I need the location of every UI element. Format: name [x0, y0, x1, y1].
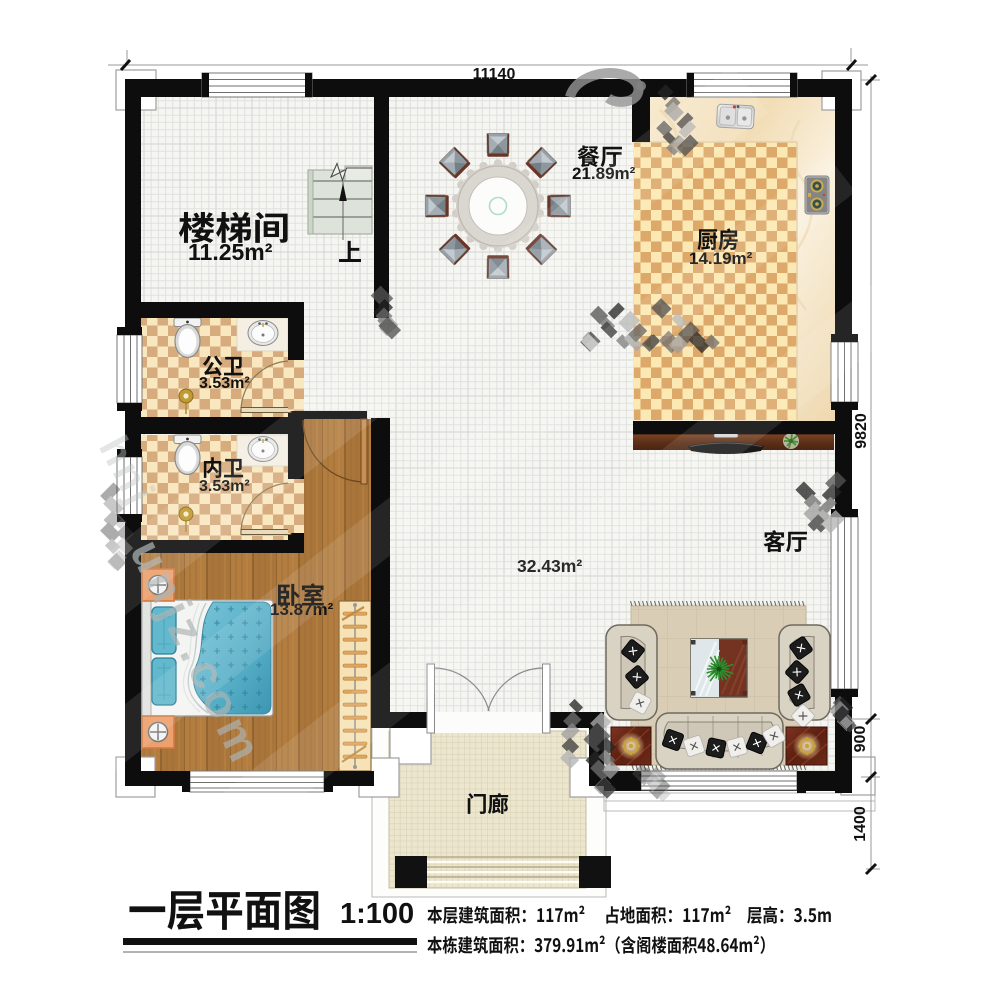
- svg-text:3.53m²: 3.53m²: [199, 375, 250, 392]
- svg-text:9820: 9820: [853, 413, 870, 449]
- svg-text:1400: 1400: [852, 806, 869, 842]
- svg-text:11140: 11140: [473, 66, 516, 83]
- svg-text:1:100: 1:100: [340, 898, 414, 930]
- svg-text:11.25m²: 11.25m²: [188, 239, 273, 265]
- svg-text:900: 900: [852, 726, 869, 753]
